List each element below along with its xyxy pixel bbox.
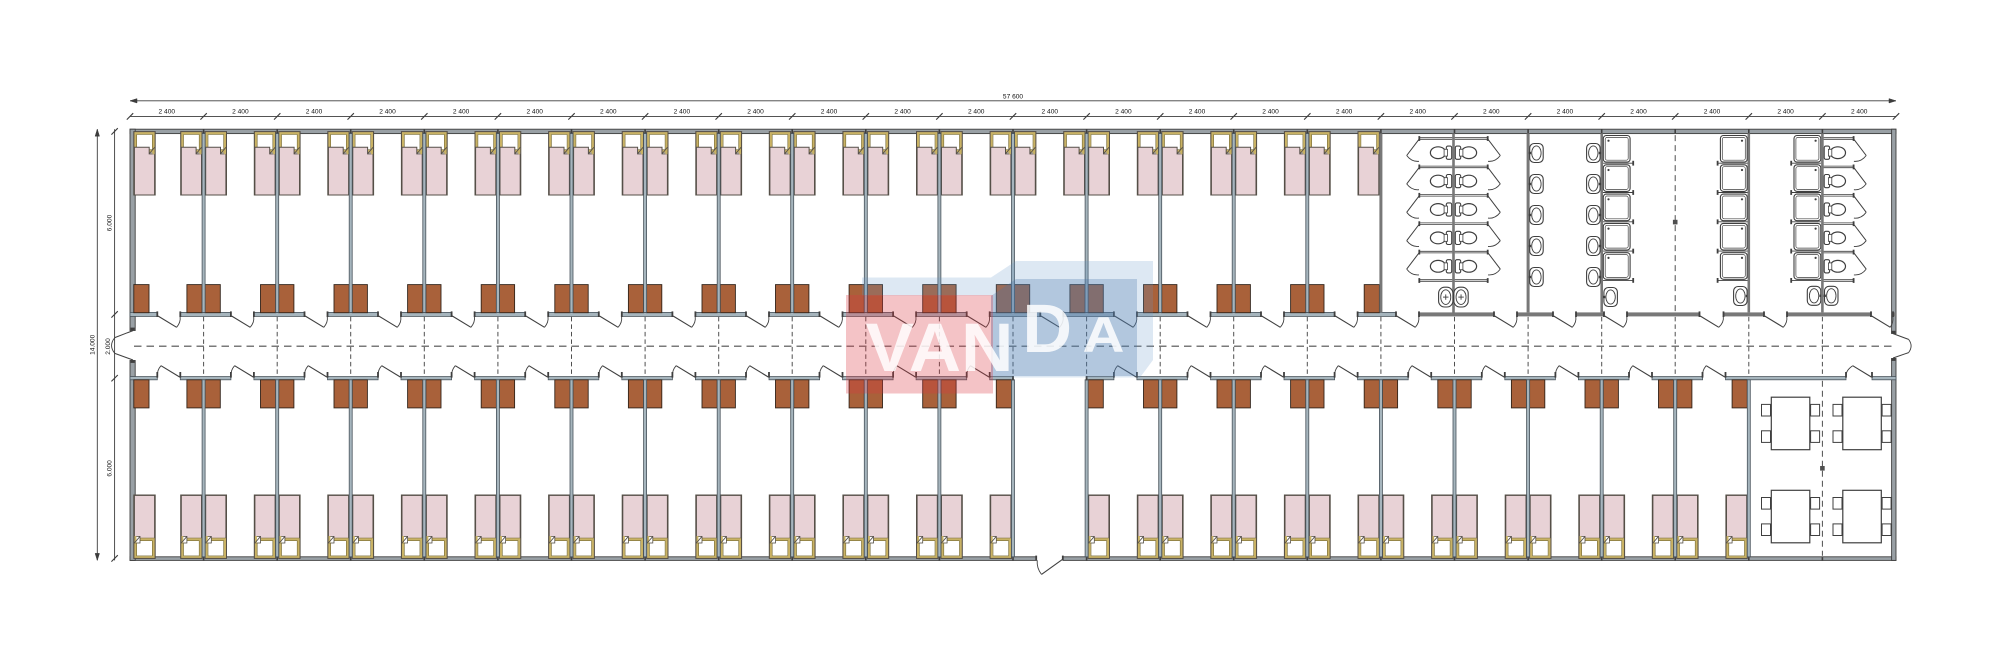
svg-text:A: A bbox=[1083, 307, 1125, 363]
svg-text:2 400: 2 400 bbox=[1630, 109, 1647, 116]
svg-text:2 400: 2 400 bbox=[232, 109, 249, 116]
svg-text:2 400: 2 400 bbox=[1262, 109, 1279, 116]
svg-text:VAN: VAN bbox=[866, 309, 1014, 386]
svg-text:2 400: 2 400 bbox=[968, 109, 985, 116]
svg-text:2 400: 2 400 bbox=[1777, 109, 1794, 116]
svg-text:2 400: 2 400 bbox=[747, 109, 764, 116]
svg-text:2 400: 2 400 bbox=[453, 109, 470, 116]
svg-text:2 400: 2 400 bbox=[1189, 109, 1206, 116]
svg-text:6.000: 6.000 bbox=[106, 460, 113, 477]
svg-text:2 400: 2 400 bbox=[1704, 109, 1721, 116]
svg-text:2 400: 2 400 bbox=[1336, 109, 1353, 116]
svg-text:2 400: 2 400 bbox=[1483, 109, 1500, 116]
svg-text:2 400: 2 400 bbox=[821, 109, 838, 116]
svg-text:2 400: 2 400 bbox=[674, 109, 691, 116]
svg-text:2 400: 2 400 bbox=[1115, 109, 1132, 116]
svg-text:14.000: 14.000 bbox=[90, 334, 97, 355]
svg-text:2 400: 2 400 bbox=[1042, 109, 1059, 116]
svg-text:2 400: 2 400 bbox=[306, 109, 323, 116]
svg-text:2.000: 2.000 bbox=[105, 338, 112, 355]
svg-text:2 400: 2 400 bbox=[600, 109, 617, 116]
svg-text:2 400: 2 400 bbox=[1557, 109, 1574, 116]
svg-text:2 400: 2 400 bbox=[379, 109, 396, 116]
svg-text:2 400: 2 400 bbox=[894, 109, 911, 116]
svg-text:57 600: 57 600 bbox=[1003, 94, 1024, 101]
svg-text:2 400: 2 400 bbox=[526, 109, 543, 116]
svg-text:2 400: 2 400 bbox=[1851, 109, 1868, 116]
svg-text:2 400: 2 400 bbox=[1409, 109, 1426, 116]
svg-text:D: D bbox=[1023, 290, 1072, 367]
svg-text:6.000: 6.000 bbox=[106, 214, 113, 231]
svg-text:2 400: 2 400 bbox=[159, 109, 176, 116]
